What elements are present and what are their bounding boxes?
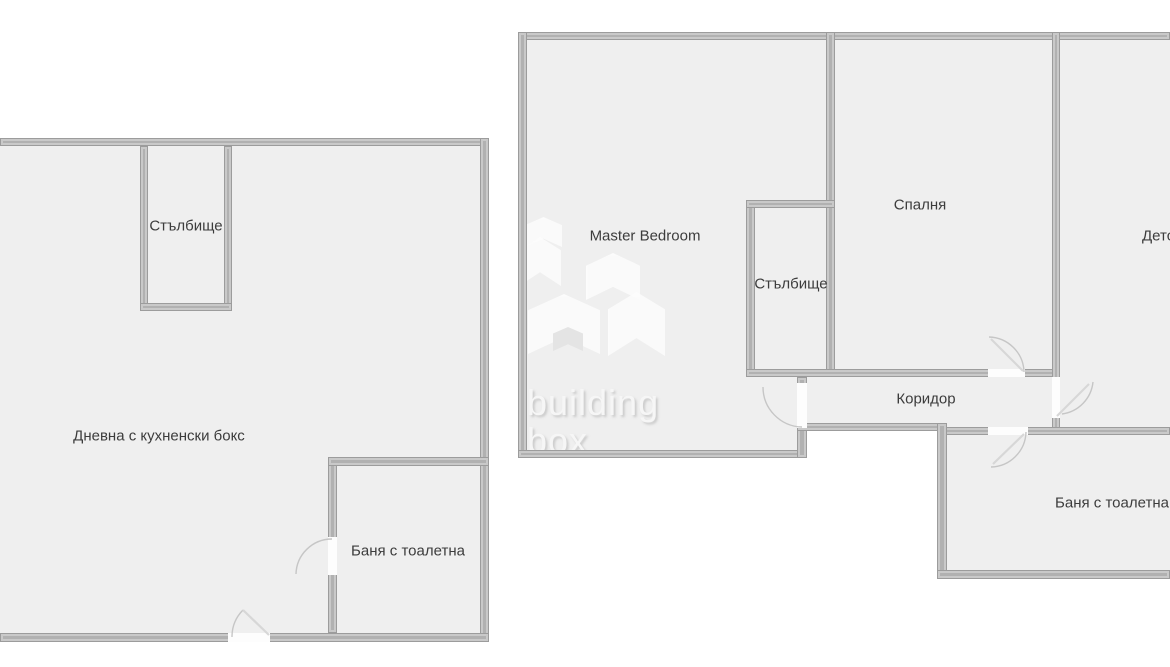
wall [937, 427, 1170, 435]
wall [746, 200, 835, 208]
door-opening [988, 427, 1028, 435]
floor-left-plan [0, 138, 489, 642]
door-opening [328, 537, 337, 575]
wall [518, 32, 527, 458]
wall [937, 570, 1170, 579]
wall [518, 450, 807, 458]
floor-plan-canvas: building box Стълбище Дневна с к [0, 0, 1170, 667]
door-opening [228, 633, 270, 642]
room-label-kids-room: Детска [1142, 228, 1170, 245]
wall [0, 138, 489, 146]
wall [480, 138, 489, 642]
room-label-right-staircase: Стълбище [754, 276, 827, 293]
room-label-left-bathroom: Баня с тоалетна [351, 543, 465, 560]
room-label-bedroom: Спалня [894, 197, 946, 214]
wall [224, 146, 232, 311]
wall [1052, 32, 1060, 434]
door-opening [988, 369, 1025, 377]
room-label-corridor: Коридор [896, 391, 955, 408]
door-opening [1052, 377, 1060, 418]
room-label-master-bedroom: Master Bedroom [590, 228, 701, 245]
room-label-left-living: Дневна с кухненски бокс [73, 428, 245, 445]
wall [797, 423, 947, 431]
wall [328, 457, 489, 466]
room-label-left-staircase: Стълбище [149, 218, 222, 235]
wall [937, 423, 947, 579]
wall [518, 32, 1170, 40]
watermark-line1: building [527, 384, 659, 422]
door-opening [797, 383, 807, 428]
wall [140, 146, 148, 311]
wall [140, 303, 232, 311]
room-label-right-bathroom: Баня с тоалетна [1055, 495, 1169, 512]
watermark-text: building box [527, 384, 659, 460]
